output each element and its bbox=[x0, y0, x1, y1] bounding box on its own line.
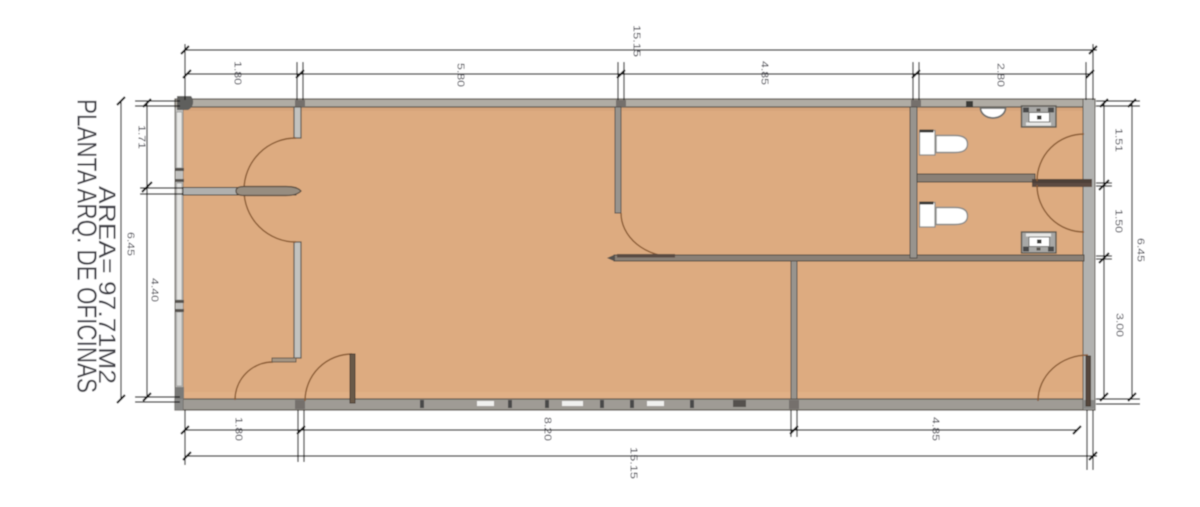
svg-text:1.51: 1.51 bbox=[1113, 128, 1124, 153]
svg-text:6.45: 6.45 bbox=[125, 232, 136, 257]
svg-text:4.40: 4.40 bbox=[149, 278, 160, 303]
svg-text:6.45: 6.45 bbox=[1135, 238, 1146, 263]
svg-text:8.20: 8.20 bbox=[542, 417, 553, 442]
svg-text:4.85: 4.85 bbox=[759, 61, 770, 86]
svg-text:5.80: 5.80 bbox=[455, 63, 466, 88]
svg-text:15.15: 15.15 bbox=[628, 447, 639, 480]
svg-text:1.80: 1.80 bbox=[232, 61, 243, 86]
svg-text:3.00: 3.00 bbox=[1114, 313, 1125, 338]
svg-text:1.71: 1.71 bbox=[136, 125, 147, 150]
svg-text:4.85: 4.85 bbox=[930, 417, 941, 442]
svg-text:2.80: 2.80 bbox=[995, 63, 1006, 88]
svg-text:1.50: 1.50 bbox=[1113, 209, 1124, 234]
svg-text:1.80: 1.80 bbox=[233, 417, 244, 442]
svg-text:15.15: 15.15 bbox=[631, 25, 642, 58]
svg-text:AREA= 97.71M2: AREA= 97.71M2 bbox=[93, 186, 120, 384]
